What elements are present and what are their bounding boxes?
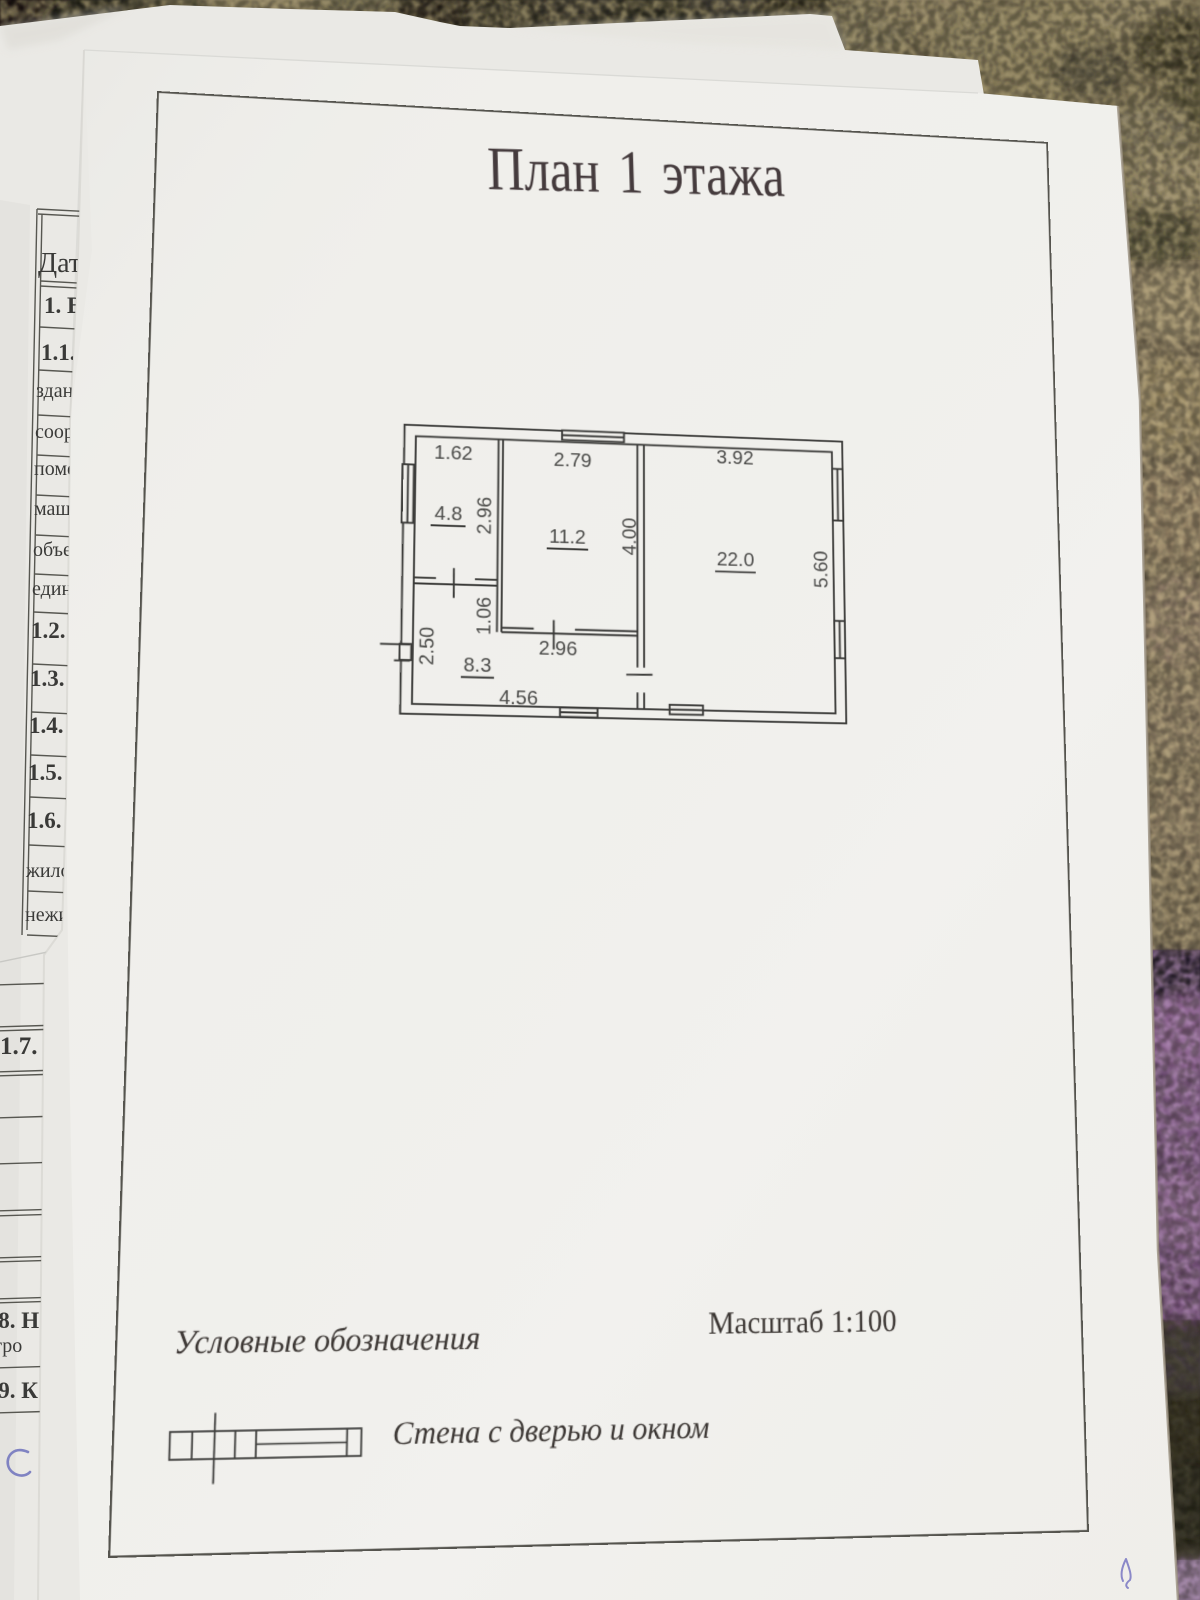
svg-text:1.1.: 1.1. — [41, 340, 76, 365]
svg-text:1.8. Н: 1.8. Н — [0, 1308, 39, 1333]
svg-text:3.92: 3.92 — [716, 447, 754, 470]
svg-text:1.62: 1.62 — [434, 442, 473, 465]
svg-text:1.9. К: 1.9. К — [0, 1378, 38, 1403]
svg-text:1.4.: 1.4. — [29, 713, 64, 738]
svg-text:4.56: 4.56 — [499, 686, 538, 709]
svg-text:1.2.: 1.2. — [31, 618, 66, 643]
svg-text:1.06: 1.06 — [473, 597, 496, 636]
svg-text:8.3: 8.3 — [463, 654, 491, 677]
svg-text:2.96: 2.96 — [473, 496, 496, 534]
svg-text:4.00: 4.00 — [619, 517, 641, 555]
svg-text:11.2: 11.2 — [549, 526, 586, 549]
svg-text:4.8: 4.8 — [434, 503, 462, 526]
svg-text:1.7.: 1.7. — [0, 1033, 38, 1060]
svg-text:2.96: 2.96 — [539, 637, 578, 660]
svg-text:22.0: 22.0 — [717, 549, 755, 572]
svg-text:5.60: 5.60 — [810, 550, 832, 588]
svg-text:1.5.: 1.5. — [28, 760, 63, 785]
svg-text:гро: гро — [0, 1335, 22, 1357]
svg-text:2.79: 2.79 — [554, 449, 592, 472]
svg-text:1.6.: 1.6. — [27, 808, 62, 833]
svg-text:1.3.: 1.3. — [30, 666, 65, 691]
svg-text:2.50: 2.50 — [415, 626, 438, 665]
